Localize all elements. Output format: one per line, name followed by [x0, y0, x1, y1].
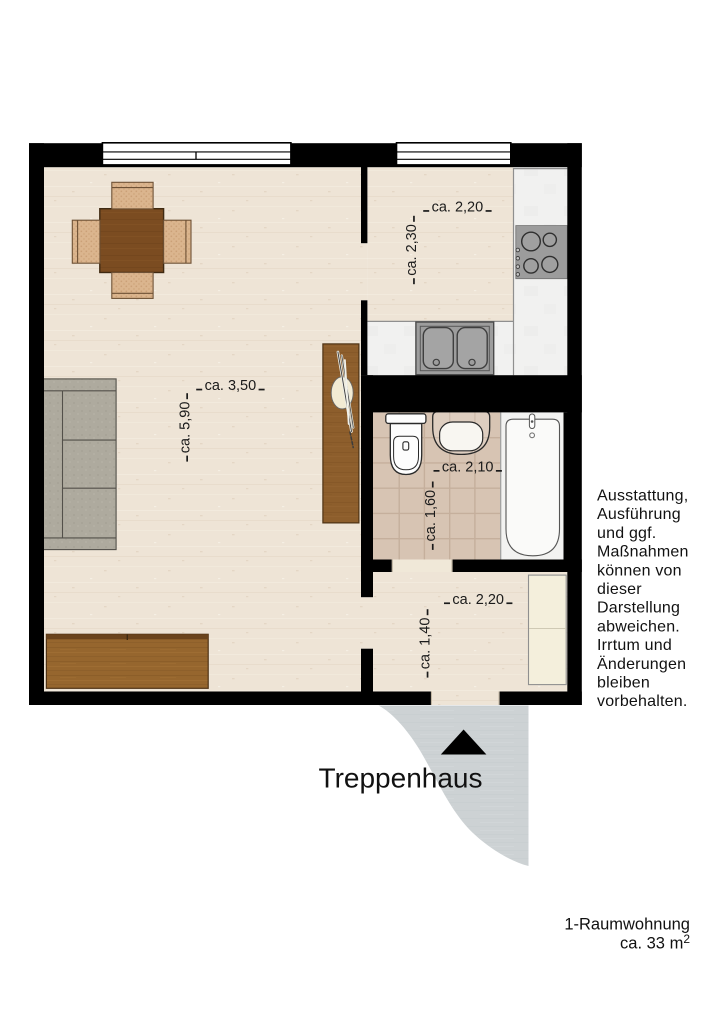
svg-text:ca. 1,40: ca. 1,40: [418, 618, 434, 670]
svg-text:1-Raumwohnung: 1-Raumwohnung: [564, 915, 690, 933]
svg-text:Änderungen: Änderungen: [597, 655, 686, 673]
svg-text:ca. 2,20: ca. 2,20: [432, 200, 484, 216]
svg-text:Ausführung: Ausführung: [597, 506, 681, 523]
svg-text:vorbehalten.: vorbehalten.: [597, 693, 687, 710]
svg-text:Darstellung: Darstellung: [597, 600, 680, 617]
svg-text:Maßnahmen: Maßnahmen: [597, 544, 689, 561]
svg-text:ca. 5,90: ca. 5,90: [177, 402, 193, 454]
svg-text:Treppenhaus: Treppenhaus: [319, 763, 483, 794]
svg-text:Ausstattung,: Ausstattung,: [597, 488, 688, 505]
svg-text:dieser: dieser: [597, 581, 642, 598]
svg-text:Irrtum und: Irrtum und: [597, 637, 672, 654]
svg-text:ca. 2,20: ca. 2,20: [452, 592, 504, 608]
svg-text:können von: können von: [597, 562, 682, 579]
svg-text:und ggf.: und ggf.: [597, 525, 656, 542]
svg-text:ca. 3,50: ca. 3,50: [205, 378, 257, 394]
svg-text:ca. 2,10: ca. 2,10: [442, 460, 494, 476]
svg-text:bleiben: bleiben: [597, 675, 650, 692]
svg-text:ca. 33 m2: ca. 33 m2: [620, 932, 690, 953]
svg-text:ca. 2,30: ca. 2,30: [404, 224, 420, 276]
svg-text:abweichen.: abweichen.: [597, 618, 680, 635]
svg-text:ca. 1,60: ca. 1,60: [423, 490, 439, 542]
